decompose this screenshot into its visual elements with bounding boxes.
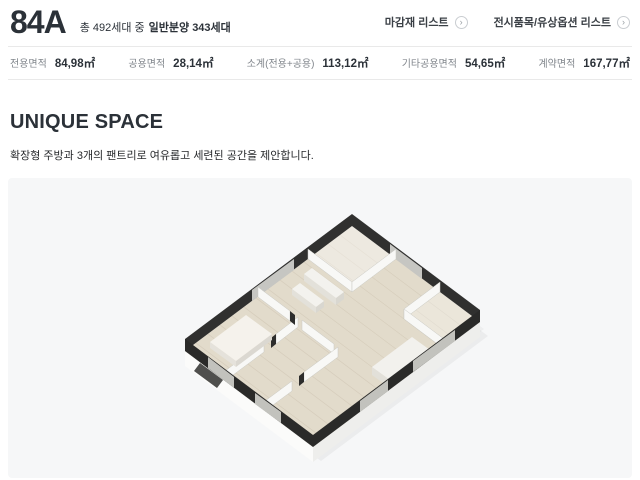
unit-count-prefix: 총 492세대 중 [80, 19, 145, 35]
stat-exclusive-area: 전용면적 84,98㎡ [10, 55, 95, 71]
stat-other-common-area: 기타공용면적 54,65㎡ [402, 55, 505, 71]
stat-subtotal-area: 소계(전용+공용) 113,12㎡ [247, 55, 369, 71]
plan-title-group: 84A 총 492세대 중 일반분양 343세대 [10, 6, 231, 38]
plan-type-title: 84A [10, 6, 66, 38]
header-links: 마감재 리스트 › 전시품목/유상옵션 리스트 › [385, 14, 630, 30]
stat-label: 전용면적 [10, 55, 47, 70]
finish-material-list-link[interactable]: 마감재 리스트 › [385, 14, 468, 30]
display-options-list-link[interactable]: 전시품목/유상옵션 리스트 › [494, 14, 630, 30]
stat-label: 기타공용면적 [402, 55, 457, 70]
stat-common-area: 공용면적 28,14㎡ [128, 55, 213, 71]
floorplan-3d-render [8, 178, 632, 478]
finish-material-list-label: 마감재 리스트 [385, 14, 449, 30]
plan-detail-page: 84A 총 492세대 중 일반분양 343세대 마감재 리스트 › 전시품목/… [0, 0, 640, 478]
stat-value: 54,65㎡ [465, 55, 505, 71]
stat-value: 113,12㎡ [322, 55, 368, 71]
unit-count-bold: 일반분양 343세대 [149, 19, 231, 35]
unit-count-summary: 총 492세대 중 일반분양 343세대 [80, 19, 231, 38]
stat-label: 공용면적 [128, 55, 165, 70]
stat-label: 소계(전용+공용) [247, 55, 315, 70]
stat-contract-area: 계약면적 167,77㎡ [538, 55, 630, 71]
stat-label: 계약면적 [538, 55, 575, 70]
stat-value: 28,14㎡ [173, 55, 213, 71]
chevron-right-circle-icon: › [617, 16, 630, 29]
floorplan-panel [8, 178, 632, 478]
section-description: 확장형 주방과 3개의 팬트리로 여유롭고 세련된 공간을 제안합니다. [10, 147, 630, 163]
section-title: UNIQUE SPACE [10, 111, 630, 134]
plan-header: 84A 총 492세대 중 일반분양 343세대 마감재 리스트 › 전시품목/… [8, 0, 632, 46]
display-options-list-label: 전시품목/유상옵션 리스트 [494, 14, 611, 30]
stat-value: 167,77㎡ [583, 55, 630, 71]
stats-divider [8, 79, 632, 80]
area-stats-row: 전용면적 84,98㎡ 공용면적 28,14㎡ 소계(전용+공용) 113,12… [8, 47, 632, 79]
stat-value: 84,98㎡ [55, 55, 95, 71]
chevron-right-circle-icon: › [455, 16, 468, 29]
